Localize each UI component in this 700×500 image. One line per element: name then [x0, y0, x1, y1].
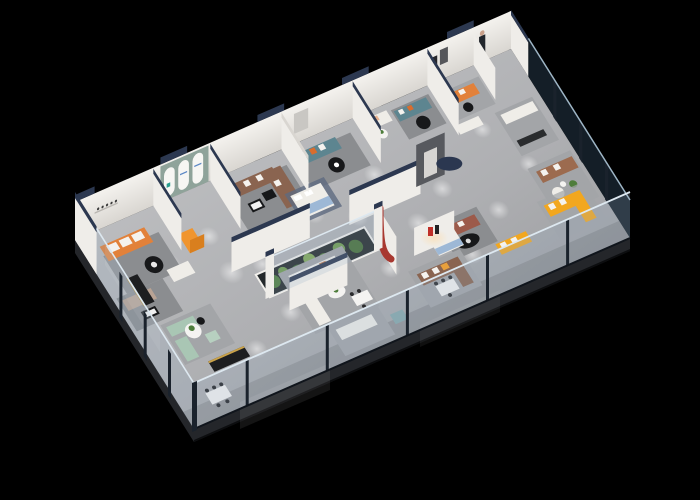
glass-mullion [144, 310, 147, 361]
glass-mullion [168, 349, 171, 400]
terrarium-pillar [266, 253, 275, 299]
brand-logo-red [428, 227, 433, 236]
glass-mullion [579, 120, 582, 163]
front-glass-corner-post [192, 381, 197, 432]
showroom-render-stage: 3D isometric aerial cutaway render of a … [0, 0, 700, 500]
glass-mullion [553, 79, 556, 122]
terrarium-pillar [374, 206, 383, 252]
brand-logo-black [435, 225, 439, 234]
navy-round-table [436, 157, 462, 171]
glass-mullion [406, 288, 409, 335]
showroom-floorplan-svg: 3D isometric aerial cutaway render of a … [0, 0, 700, 500]
glass-mullion [486, 253, 489, 300]
glass-mullion [605, 161, 608, 204]
glass-mullion [326, 323, 329, 370]
glass-mullion [246, 359, 249, 406]
logo-warm-glow [420, 229, 448, 247]
glass-mullion [119, 272, 122, 323]
glass-mullion [566, 218, 569, 265]
